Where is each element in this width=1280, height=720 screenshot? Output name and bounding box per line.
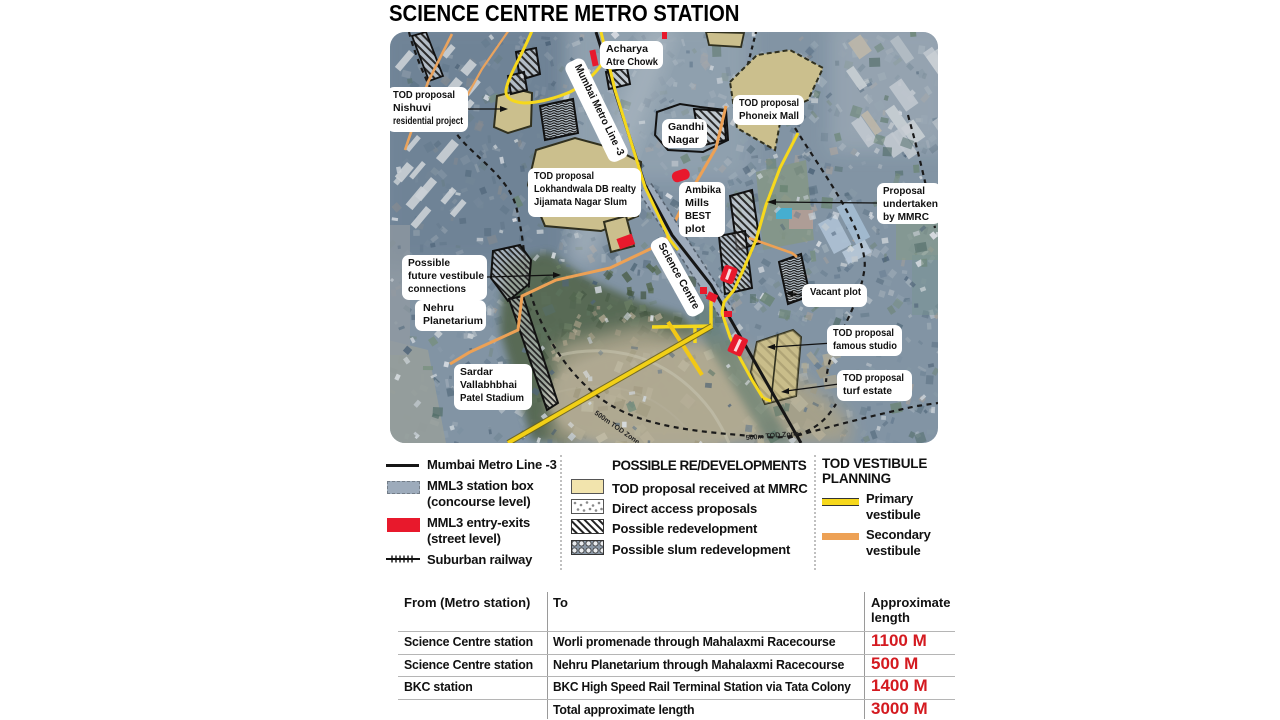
svg-text:Lokhandwala DB realty: Lokhandwala DB realty bbox=[534, 183, 636, 195]
svg-text:TOD proposal: TOD proposal bbox=[534, 170, 594, 182]
svg-text:Mills: Mills bbox=[685, 197, 709, 209]
svg-text:connections: connections bbox=[408, 283, 466, 295]
svg-text:Vacant plot: Vacant plot bbox=[810, 286, 861, 298]
svg-text:TOD proposal: TOD proposal bbox=[739, 97, 799, 109]
svg-text:undertaken: undertaken bbox=[883, 198, 938, 210]
svg-text:residential project: residential project bbox=[393, 115, 463, 127]
svg-text:Sardar: Sardar bbox=[460, 366, 493, 378]
svg-text:future vestibule: future vestibule bbox=[408, 270, 484, 282]
svg-text:famous studio: famous studio bbox=[833, 340, 897, 352]
svg-text:plot: plot bbox=[685, 223, 706, 235]
svg-text:Acharya: Acharya bbox=[606, 43, 648, 55]
svg-text:TOD proposal: TOD proposal bbox=[393, 89, 455, 101]
svg-text:TOD proposal: TOD proposal bbox=[833, 327, 894, 339]
svg-text:Phoneix Mall: Phoneix Mall bbox=[739, 110, 799, 122]
svg-text:Nagar: Nagar bbox=[668, 134, 699, 146]
svg-text:turf estate: turf estate bbox=[843, 385, 892, 397]
svg-text:TOD proposal: TOD proposal bbox=[843, 372, 904, 384]
svg-text:by MMRC: by MMRC bbox=[883, 211, 929, 223]
svg-text:Ambika: Ambika bbox=[685, 184, 721, 196]
svg-text:Atre Chowk: Atre Chowk bbox=[606, 56, 658, 68]
svg-text:BEST: BEST bbox=[685, 210, 712, 222]
svg-text:Patel Stadium: Patel Stadium bbox=[460, 392, 524, 404]
svg-text:Nishuvi: Nishuvi bbox=[393, 102, 431, 114]
svg-text:Planetarium: Planetarium bbox=[423, 315, 483, 327]
svg-text:Proposal: Proposal bbox=[883, 185, 925, 197]
svg-text:Jijamata Nagar Slum: Jijamata Nagar Slum bbox=[534, 196, 627, 208]
svg-text:Possible: Possible bbox=[408, 257, 450, 269]
svg-text:Gandhi: Gandhi bbox=[668, 121, 704, 133]
svg-text:Nehru: Nehru bbox=[423, 302, 454, 314]
svg-text:Vallabhbhai: Vallabhbhai bbox=[460, 379, 517, 391]
